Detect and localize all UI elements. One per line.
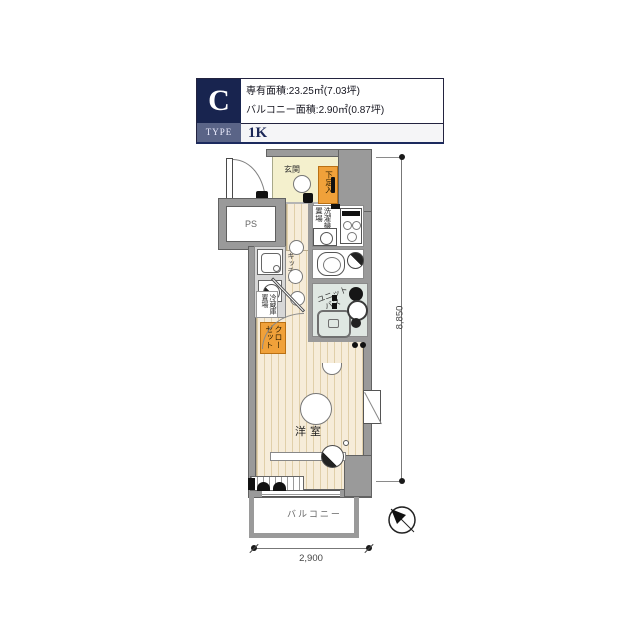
rail-end-icon <box>248 478 255 490</box>
vent-fan-icon <box>331 204 340 209</box>
type-letter: C <box>197 79 241 123</box>
boot-icon <box>331 177 335 193</box>
dim-line-horizontal <box>254 548 370 549</box>
floorplan-page: C TYPE 専有面積:23.25㎡(7.03坪) バルコニー面積:2.90㎡(… <box>0 0 640 640</box>
dim-dot-bottom <box>399 478 405 484</box>
wall-top-right-block <box>338 149 372 212</box>
balcony-wall-bottom <box>249 533 359 538</box>
room-label: 洋室 <box>295 428 325 437</box>
counter-basin-icon <box>321 445 344 468</box>
plan-header: C TYPE 専有面積:23.25㎡(7.03坪) バルコニー面積:2.90㎡(… <box>196 78 444 144</box>
switch-icon-4 <box>360 342 366 348</box>
shoe-box: 下足入 <box>318 166 338 204</box>
balcony-label: バルコニー <box>287 510 342 519</box>
entrance-label: 玄関 <box>284 165 300 174</box>
unit-bath: ユニット バス <box>312 283 368 337</box>
door-knob-1 <box>289 240 304 255</box>
dim-dot-top <box>399 154 405 160</box>
switch-icon-3 <box>352 342 358 348</box>
dim-height-label: 8,850 <box>394 306 405 330</box>
fridge-space-label: 冷蔵庫置場 <box>260 294 276 317</box>
shower-drain-icon <box>351 318 361 328</box>
ps-label: PS <box>245 220 257 229</box>
rail-cap-icon-1 <box>257 482 270 491</box>
wall-bottom-right-block <box>344 455 372 497</box>
entrance-fixture <box>293 175 311 193</box>
balcony-window <box>262 490 340 497</box>
balcony-area-text: バルコニー面積:2.90㎡(0.87坪) <box>246 101 441 120</box>
layout-row: 1K <box>241 123 443 142</box>
dim-width-label: 2,900 <box>290 553 332 564</box>
switch-icon-1 <box>332 295 337 301</box>
stove-icon <box>257 249 283 275</box>
rail-cap-icon-2 <box>273 482 286 491</box>
fridge-space: 冷蔵庫置場 <box>256 291 278 318</box>
toilet-tank-icon <box>349 287 363 301</box>
balcony-wall-right <box>354 497 359 538</box>
bathtub-icon <box>317 310 351 338</box>
exclusive-area-text: 専有面積:23.25㎡(7.03坪) <box>246 82 441 101</box>
water-heater-icon <box>340 208 362 244</box>
faucet-dot-icon <box>343 440 349 446</box>
door-knob-2 <box>288 269 303 284</box>
type-word: TYPE <box>197 123 241 142</box>
vanity-sink-icon <box>317 252 345 276</box>
vanity-bowl-icon <box>347 252 364 269</box>
area-info: 専有面積:23.25㎡(7.03坪) バルコニー面積:2.90㎡(0.87坪) <box>246 82 441 122</box>
ps-box: PS <box>226 206 276 242</box>
doorstop-fixture <box>303 193 313 203</box>
layout-type: 1K <box>241 124 443 142</box>
wall-top <box>266 149 346 157</box>
casement-window <box>363 390 381 424</box>
north-arrow-icon <box>385 503 419 537</box>
ceiling-light-icon <box>300 393 332 425</box>
balcony-wall-left <box>249 497 254 538</box>
switch-icon-2 <box>332 303 337 309</box>
washing-machine-icon <box>313 228 337 246</box>
